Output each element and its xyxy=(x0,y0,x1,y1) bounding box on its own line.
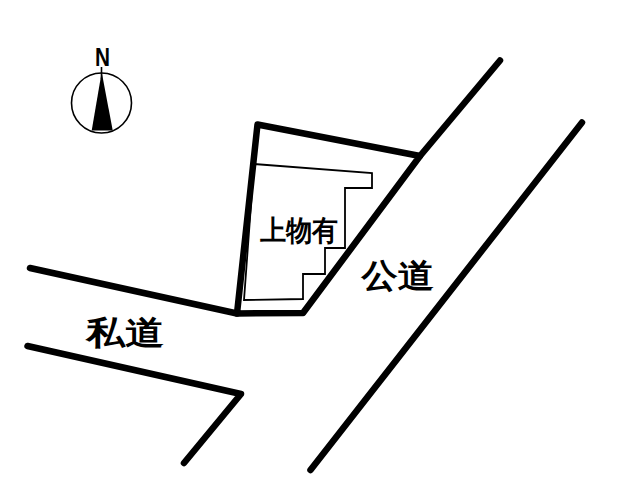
public-road-near-edge-line xyxy=(420,61,500,157)
compass-needle-icon xyxy=(92,72,113,131)
private-road-upper-edge-line xyxy=(30,268,237,314)
plot-map: N 上物有 公道 私道 xyxy=(0,0,640,480)
compass: N xyxy=(72,42,132,133)
public-road-label: 公道 xyxy=(360,257,434,294)
building-label: 上物有 xyxy=(260,215,338,246)
private-road-label: 私道 xyxy=(84,314,164,351)
compass-north-label: N xyxy=(95,42,110,72)
plot-map-canvas: N 上物有 公道 私道 xyxy=(0,0,640,480)
private-road-lower-edge-line xyxy=(28,346,242,463)
